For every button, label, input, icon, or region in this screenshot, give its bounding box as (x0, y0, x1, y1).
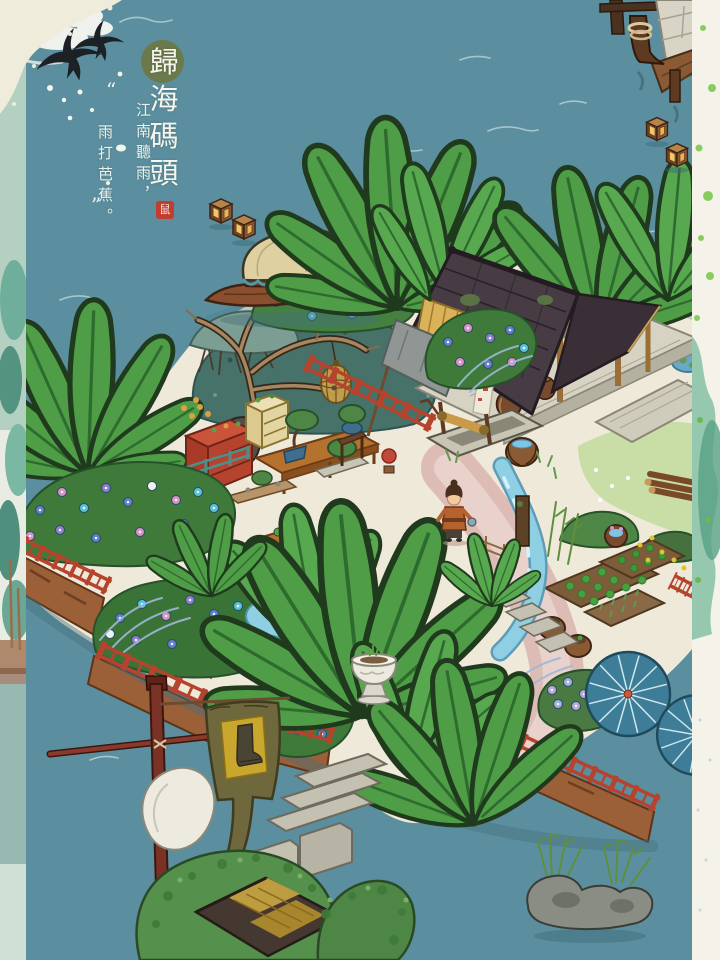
poem-line-1: 江南聽雨， (133, 102, 154, 207)
poem-close-quote: ” (91, 193, 101, 217)
poem-open-quote: “ (106, 78, 116, 102)
title-char: 歸 (146, 44, 182, 81)
red-leaf-bonsai[interactable] (382, 449, 396, 473)
game-viewport: 歸 海 碼 頭 “ 江南聽雨， 雨打芭蕉。 ” 鼠 (0, 0, 720, 960)
timber-beam (600, 2, 658, 12)
hand-lantern (468, 518, 476, 526)
title-seal: 鼠 (156, 201, 174, 219)
mooring-post-small (670, 70, 680, 102)
seal-char: 鼠 (160, 201, 171, 219)
display-shelf[interactable] (246, 394, 288, 449)
watercolor-border-right (692, 0, 720, 960)
